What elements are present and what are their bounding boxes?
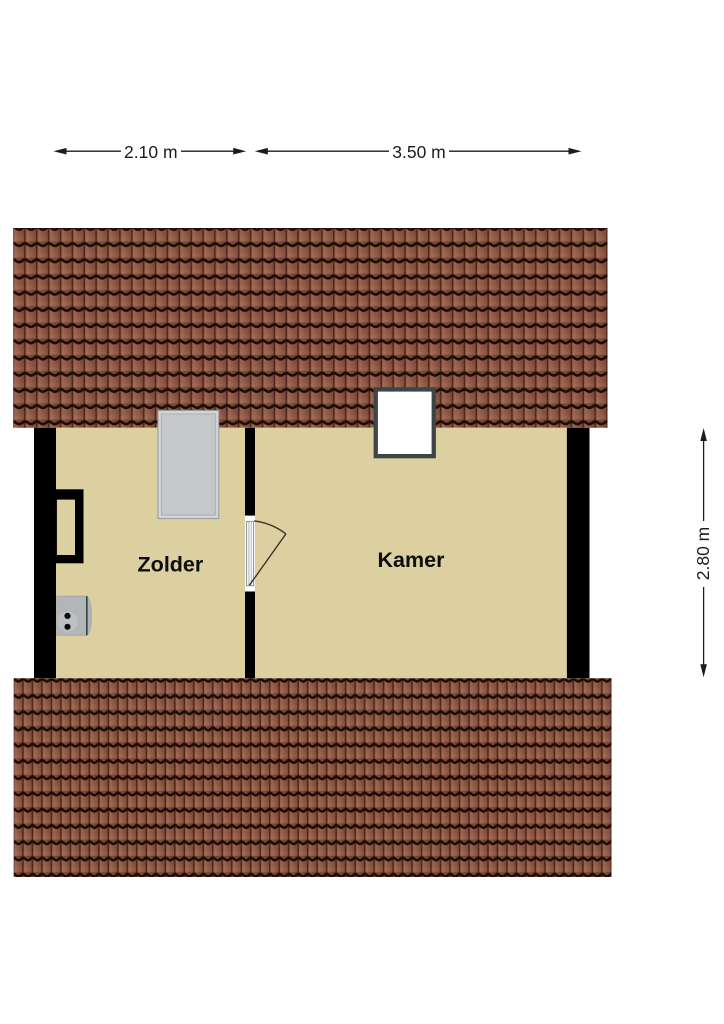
svg-text:2.10 m: 2.10 m <box>124 142 178 162</box>
svg-text:3.50 m: 3.50 m <box>392 142 446 162</box>
svg-text:2.80 m: 2.80 m <box>693 527 713 581</box>
svg-text:Kamer: Kamer <box>378 548 446 572</box>
svg-text:Zolder: Zolder <box>138 553 204 577</box>
